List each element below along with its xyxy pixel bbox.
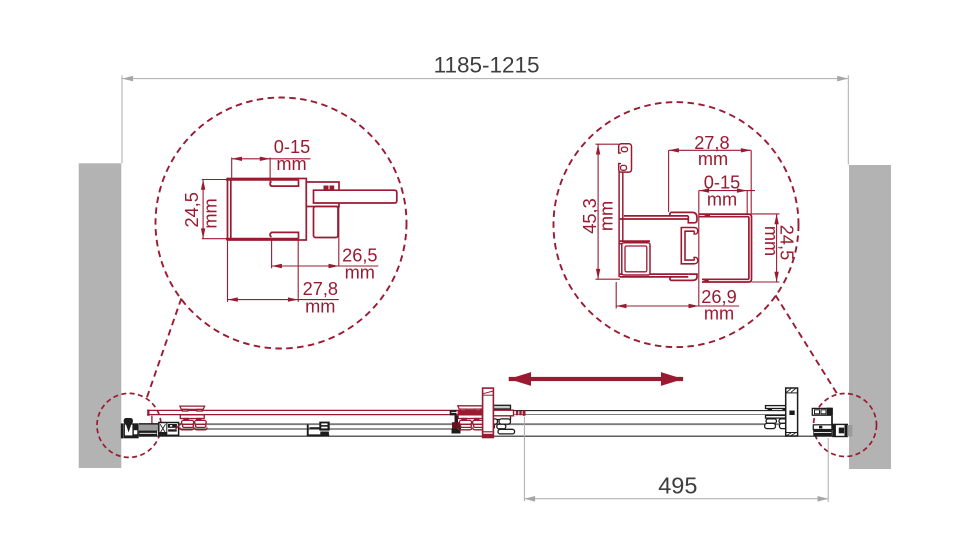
- svg-text:mm: mm: [345, 263, 375, 283]
- svg-text:mm: mm: [761, 226, 781, 256]
- svg-text:mm: mm: [707, 190, 737, 210]
- svg-text:24,5: 24,5: [182, 192, 202, 227]
- svg-text:mm: mm: [698, 149, 728, 169]
- svg-text:mm: mm: [704, 304, 734, 324]
- svg-text:mm: mm: [201, 198, 221, 228]
- svg-text:mm: mm: [597, 201, 617, 231]
- svg-text:1185-1215: 1185-1215: [434, 53, 540, 78]
- svg-text:mm: mm: [276, 154, 306, 174]
- svg-text:mm: mm: [305, 296, 335, 316]
- svg-text:495: 495: [658, 472, 697, 498]
